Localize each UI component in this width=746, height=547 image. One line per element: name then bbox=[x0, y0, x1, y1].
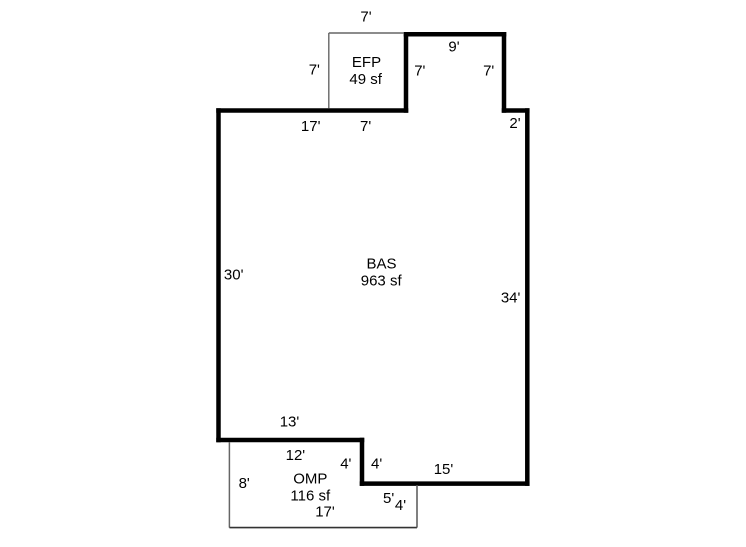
svg-text:BAS: BAS bbox=[366, 255, 396, 272]
svg-text:7': 7' bbox=[360, 8, 371, 25]
svg-text:7': 7' bbox=[414, 62, 425, 79]
svg-text:7': 7' bbox=[483, 62, 494, 79]
svg-text:49 sf: 49 sf bbox=[349, 71, 382, 88]
svg-text:4': 4' bbox=[371, 455, 382, 472]
svg-text:17': 17' bbox=[315, 503, 335, 520]
svg-text:2': 2' bbox=[509, 115, 520, 132]
svg-text:EFP: EFP bbox=[352, 54, 381, 71]
svg-text:8': 8' bbox=[239, 475, 250, 492]
svg-text:12': 12' bbox=[286, 447, 306, 464]
svg-text:4': 4' bbox=[340, 455, 351, 472]
svg-text:5': 5' bbox=[383, 490, 394, 507]
svg-text:9': 9' bbox=[448, 38, 459, 55]
svg-text:17': 17' bbox=[301, 118, 321, 135]
svg-text:116 sf: 116 sf bbox=[290, 487, 331, 504]
svg-text:13': 13' bbox=[280, 414, 300, 431]
svg-text:963 sf: 963 sf bbox=[361, 272, 403, 289]
svg-text:OMP: OMP bbox=[293, 470, 327, 487]
svg-text:15': 15' bbox=[434, 461, 454, 478]
svg-text:34': 34' bbox=[501, 289, 521, 306]
svg-text:4': 4' bbox=[395, 497, 406, 514]
svg-text:7': 7' bbox=[309, 61, 320, 78]
svg-text:7': 7' bbox=[360, 118, 371, 135]
svg-text:30': 30' bbox=[224, 267, 244, 284]
